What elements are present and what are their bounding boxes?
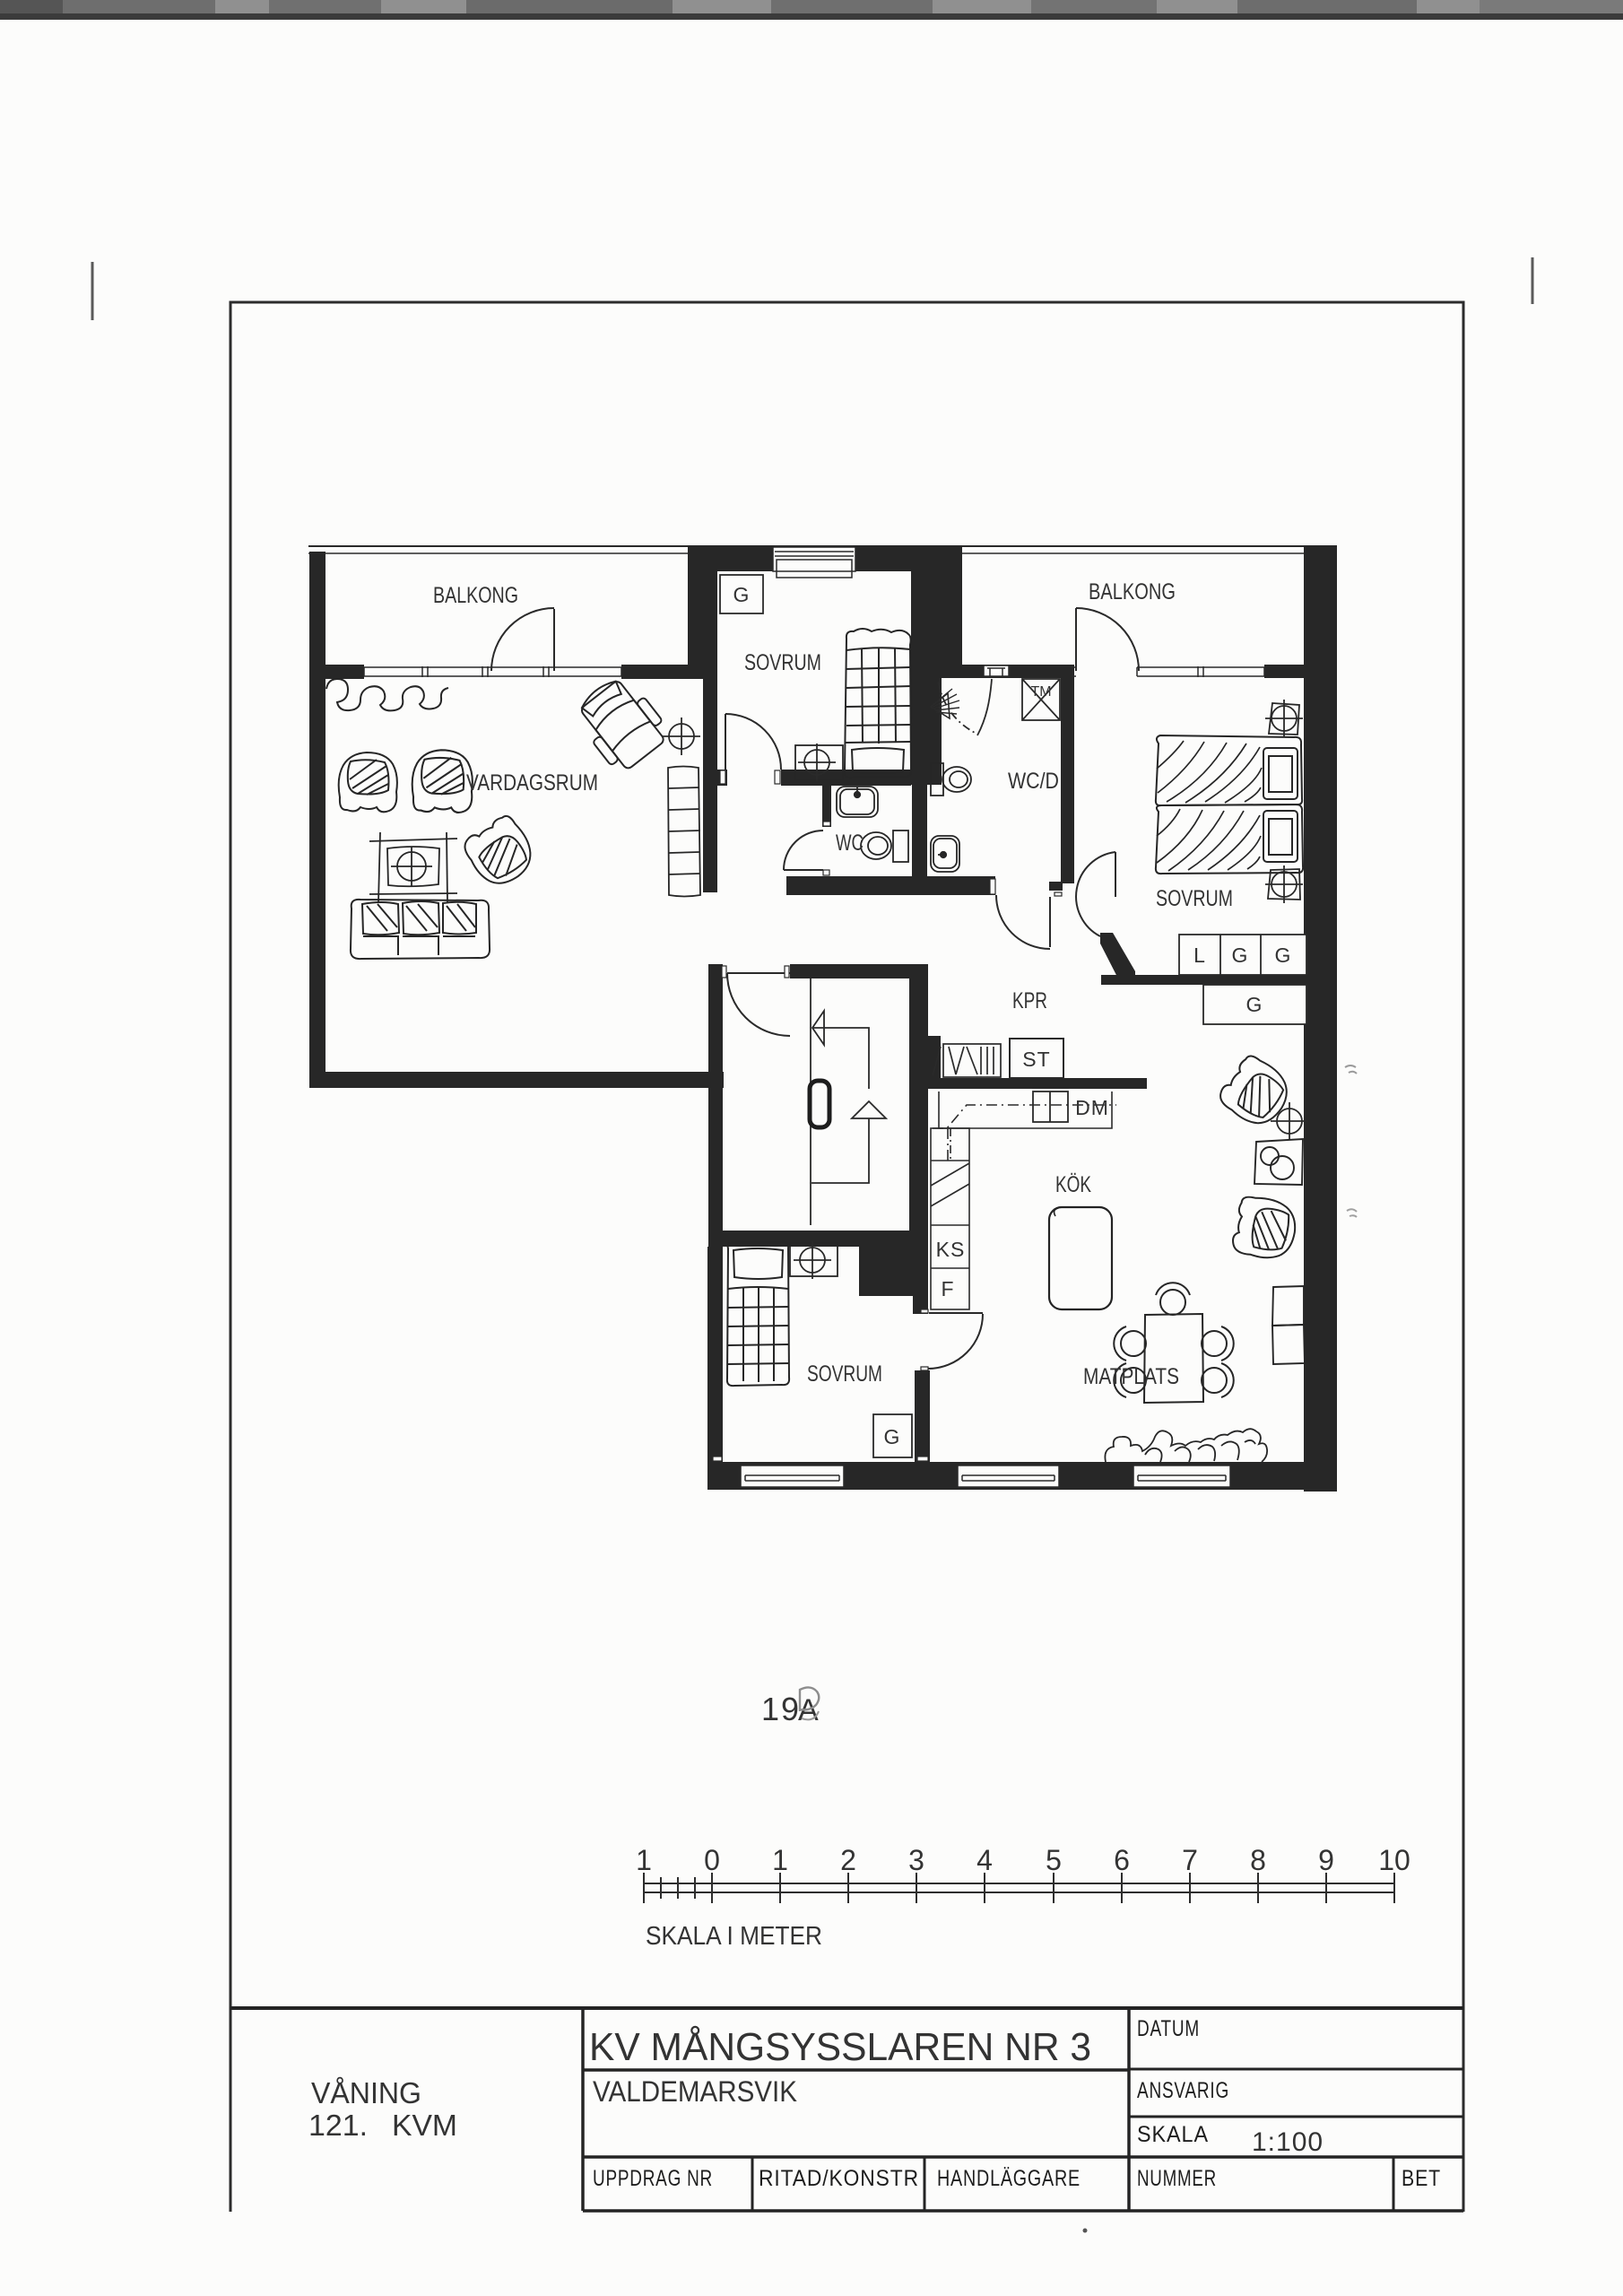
svg-text:SKALA I METER: SKALA I METER xyxy=(646,1922,822,1951)
svg-text:KPR: KPR xyxy=(1012,988,1047,1013)
svg-text:SOVRUM: SOVRUM xyxy=(744,650,821,675)
svg-text:5: 5 xyxy=(1046,1844,1062,1876)
svg-text:9: 9 xyxy=(1318,1844,1334,1876)
svg-text:1:100: 1:100 xyxy=(1252,2127,1324,2157)
svg-text:BALKONG: BALKONG xyxy=(433,583,518,608)
svg-text:2: 2 xyxy=(840,1844,856,1876)
svg-text:UPPDRAG NR: UPPDRAG NR xyxy=(593,2166,713,2191)
svg-text:G: G xyxy=(884,1425,901,1448)
svg-text:F: F xyxy=(941,1277,954,1300)
svg-text:VARDAGSRUM: VARDAGSRUM xyxy=(466,770,598,796)
svg-text:7: 7 xyxy=(1182,1844,1198,1876)
svg-text:VÅNING: VÅNING xyxy=(311,2076,421,2109)
svg-text:1: 1 xyxy=(636,1844,652,1876)
svg-text:KS: KS xyxy=(936,1238,966,1261)
svg-text:WC: WC xyxy=(836,831,864,856)
svg-text:ST: ST xyxy=(1022,1048,1050,1071)
svg-text:RITAD/KONSTR: RITAD/KONSTR xyxy=(759,2166,919,2191)
svg-text:VALDEMARSVIK: VALDEMARSVIK xyxy=(593,2075,797,2108)
svg-text:WC/D: WC/D xyxy=(1008,769,1059,794)
svg-text:1: 1 xyxy=(772,1844,788,1876)
svg-text:BET: BET xyxy=(1402,2166,1441,2191)
svg-text:NUMMER: NUMMER xyxy=(1137,2166,1217,2191)
svg-text:19: 19 xyxy=(761,1691,801,1727)
svg-text:4: 4 xyxy=(976,1844,993,1876)
svg-text:ANSVARIG: ANSVARIG xyxy=(1137,2078,1229,2103)
svg-text:L: L xyxy=(1193,944,1206,967)
svg-text:121.: 121. xyxy=(308,2109,368,2142)
svg-text:6: 6 xyxy=(1114,1844,1130,1876)
svg-text:HANDLÄGGARE: HANDLÄGGARE xyxy=(937,2166,1081,2191)
svg-text:KVM: KVM xyxy=(392,2109,457,2142)
svg-text:MATPLATS: MATPLATS xyxy=(1083,1364,1179,1389)
svg-text:SOVRUM: SOVRUM xyxy=(807,1361,882,1387)
svg-text:G: G xyxy=(1275,944,1292,967)
svg-text:TM: TM xyxy=(1030,684,1051,700)
svg-text:G: G xyxy=(1246,993,1263,1016)
svg-text:8: 8 xyxy=(1250,1844,1266,1876)
svg-text:G: G xyxy=(1232,944,1249,967)
svg-text:10: 10 xyxy=(1378,1844,1410,1876)
svg-text:SOVRUM: SOVRUM xyxy=(1156,886,1233,911)
svg-text:KÖK: KÖK xyxy=(1055,1172,1091,1197)
svg-text:DM: DM xyxy=(1075,1096,1109,1119)
svg-text:KV MÅNGSYSSLAREN NR 3: KV MÅNGSYSSLAREN NR 3 xyxy=(589,2025,1091,2069)
svg-text:3: 3 xyxy=(908,1844,924,1876)
svg-text:SKALA: SKALA xyxy=(1137,2122,1209,2147)
svg-text:BALKONG: BALKONG xyxy=(1089,579,1176,604)
svg-text:DATUM: DATUM xyxy=(1137,2016,1200,2041)
svg-text:0: 0 xyxy=(704,1844,720,1876)
svg-text:G: G xyxy=(733,583,751,606)
